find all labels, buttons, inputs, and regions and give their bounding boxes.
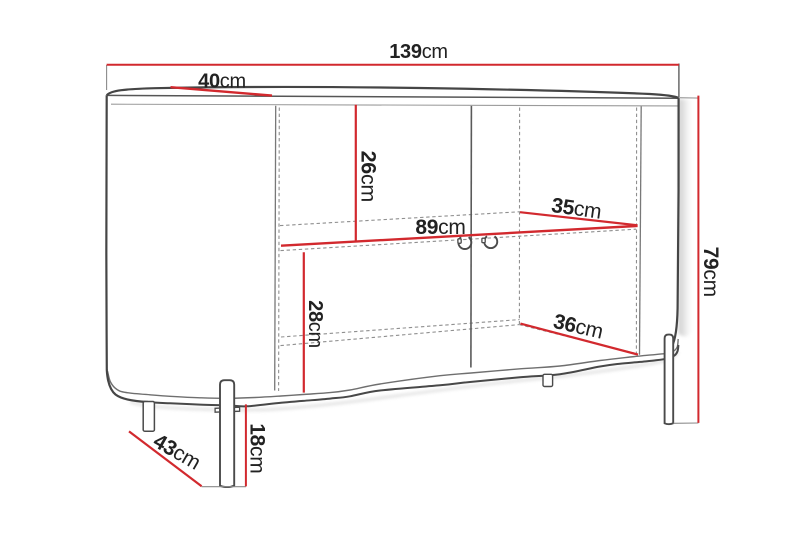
svg-text:89cm: 89cm [415,216,465,239]
svg-text:18cm: 18cm [245,423,268,473]
svg-text:40cm: 40cm [198,71,246,93]
svg-text:26cm: 26cm [357,151,381,202]
svg-text:28cm: 28cm [304,300,326,348]
svg-text:79cm: 79cm [699,247,722,297]
svg-text:139cm: 139cm [389,41,448,63]
